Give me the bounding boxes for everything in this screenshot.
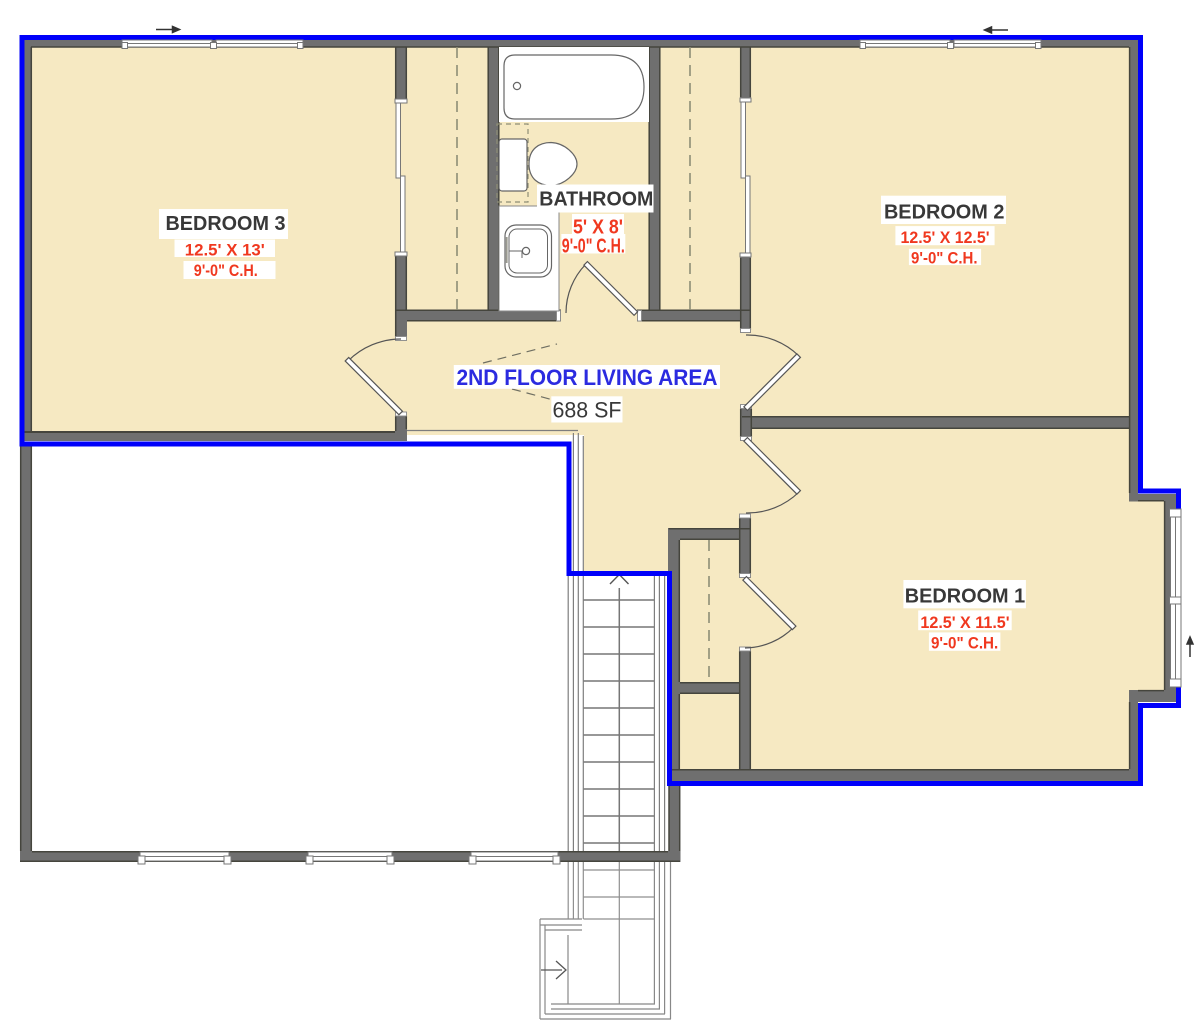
svg-text:9'-0" C.H.: 9'-0" C.H. — [911, 249, 978, 268]
svg-text:12.5' X 11.5': 12.5' X 11.5' — [920, 613, 1009, 632]
svg-text:12.5' X 12.5': 12.5' X 12.5' — [901, 228, 990, 247]
svg-text:9'-0" C.H.: 9'-0" C.H. — [194, 261, 258, 280]
svg-text:BEDROOM 2: BEDROOM 2 — [884, 200, 1005, 223]
svg-text:9'-0" C.H.: 9'-0" C.H. — [562, 235, 625, 258]
svg-text:BEDROOM 3: BEDROOM 3 — [166, 212, 286, 235]
svg-text:BATHROOM: BATHROOM — [539, 188, 653, 211]
svg-text:BEDROOM 1: BEDROOM 1 — [905, 585, 1025, 608]
svg-text:9'-0" C.H.: 9'-0" C.H. — [931, 634, 998, 653]
svg-text:2ND FLOOR LIVING AREA: 2ND FLOOR LIVING AREA — [457, 365, 718, 390]
svg-text:688 SF: 688 SF — [553, 398, 622, 423]
svg-text:12.5' X 13': 12.5' X 13' — [185, 241, 265, 260]
